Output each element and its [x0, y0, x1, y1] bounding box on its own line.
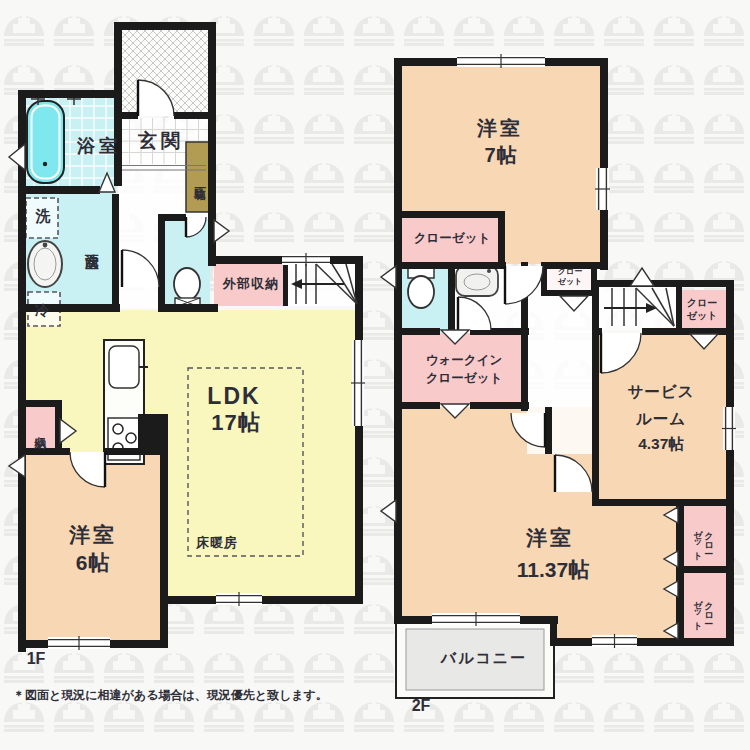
label-bedroom7-size: 7帖	[484, 145, 517, 167]
label-floor2: 2F	[412, 697, 431, 714]
label-ldk-name: LDK	[207, 384, 260, 409]
floorplan-drawing	[0, 0, 750, 750]
label-bedroom11-size: 11.37帖	[517, 559, 589, 582]
label-closet-r1-line1: クロー	[703, 525, 713, 549]
label-entrance: 玄関	[138, 131, 184, 152]
label-shoe-cabinet: 下駄箱	[194, 178, 206, 181]
label-bedroom6-size: 6帖	[76, 552, 111, 575]
label-fridge: 冷	[35, 303, 49, 318]
label-storage: 収納	[34, 428, 46, 430]
label-service-size: 4.37帖	[638, 436, 684, 453]
label-wic-line2: クローゼット	[426, 372, 502, 386]
label-bedroom11-name: 洋室	[526, 527, 574, 550]
label-wic-line1: ウォークイン	[426, 354, 502, 368]
label-small-closet-line1: クロー	[558, 268, 582, 277]
floorplan-canvas: 浴室玄関下駄箱洗洗面室冷外部収納LDK17帖床暖房収納洋室6帖1F＊図面と現況に…	[0, 0, 750, 750]
label-closet-r2-line1: クロー	[703, 595, 713, 619]
label-closet-r1-line2: ゼット	[692, 523, 702, 557]
label-note: ＊図面と現況に相違がある場合は、現況優先と致します。	[13, 689, 328, 702]
label-closet-r2-line2: ゼット	[692, 593, 702, 627]
label-bedroom6-name: 洋室	[69, 524, 117, 547]
label-bath: 浴室	[77, 137, 121, 156]
label-ldk-size: 17帖	[211, 411, 260, 435]
label-stairs-closet-line1: クロー	[687, 298, 717, 309]
label-closet-bedroom7: クローゼット	[414, 232, 490, 246]
label-washroom: 洗面室	[84, 243, 99, 246]
label-service-line2: ルーム	[636, 411, 686, 428]
label-floor1: 1F	[27, 650, 46, 667]
label-washer: 洗	[36, 208, 51, 224]
label-floor-heating: 床暖房	[196, 536, 238, 550]
label-bedroom7-name: 洋室	[477, 118, 523, 140]
label-small-closet-line2: ゼット	[558, 278, 583, 287]
label-balcony: バルコニー	[441, 650, 527, 666]
label-exterior-storage: 外部収納	[223, 277, 279, 291]
label-service-line1: サービス	[627, 384, 694, 401]
label-stairs-closet-line2: ゼット	[687, 311, 718, 322]
